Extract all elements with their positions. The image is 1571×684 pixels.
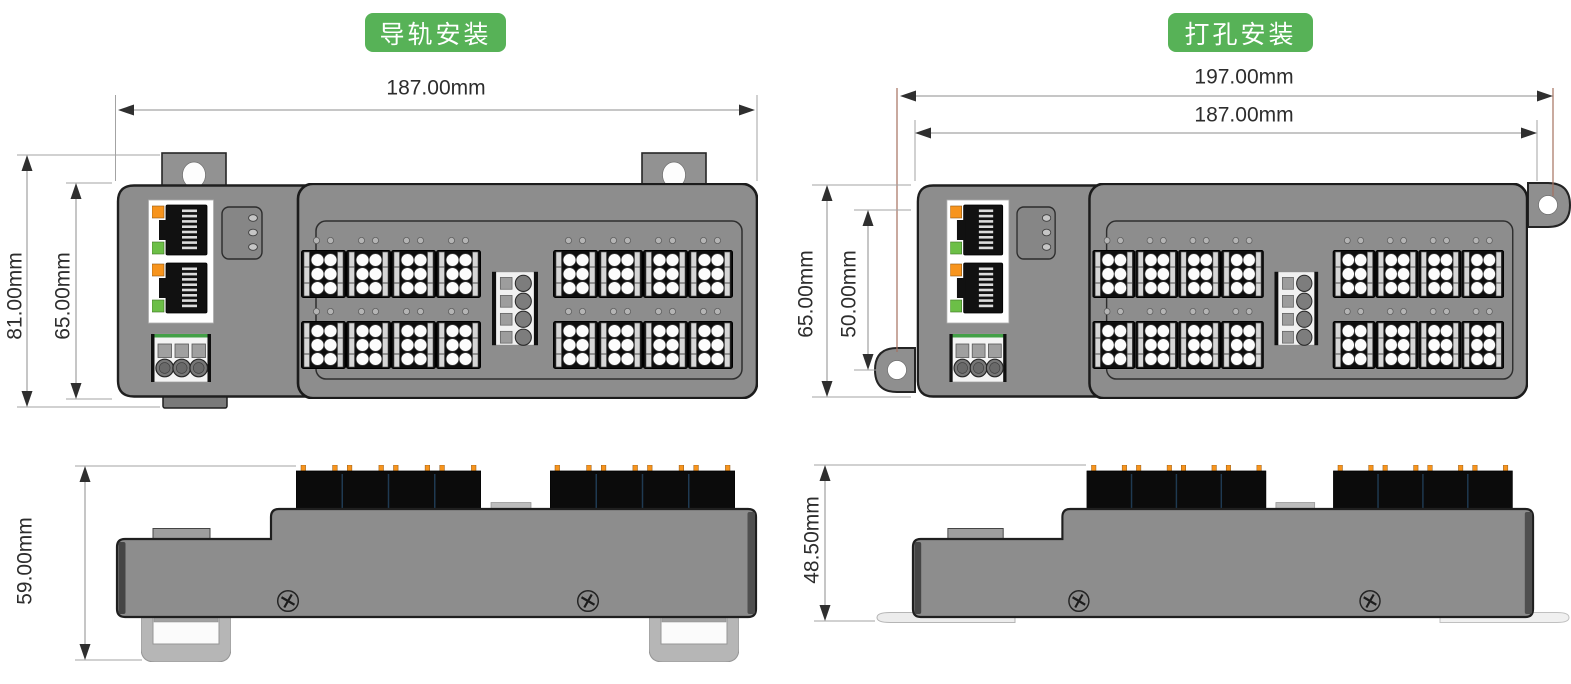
screw-front-view [875,183,1570,398]
dimension-diagram-page: 导轨安装 打孔安装 [0,0,1571,684]
screw-bottom-view [877,465,1569,623]
device-drawing: 187.00mm 81.00mm 65.00mm [0,0,1571,684]
dimension-label: 50.00mm [838,250,861,338]
device-front-body [118,184,757,398]
rail-mount-assembly: 187.00mm 81.00mm 65.00mm [4,77,758,663]
mount-hole-top-right [1539,196,1558,215]
dimension-height-65: 65.00mm [52,183,113,399]
dimension-label: 81.00mm [4,252,27,340]
dimension-label: 65.00mm [795,250,818,338]
dimension-label: 187.00mm [1194,104,1293,127]
dimension-label: 187.00mm [386,77,485,100]
dimension-label: 65.00mm [52,252,75,340]
rail-front-view [118,153,757,408]
dimension-label: 197.00mm [1194,66,1293,89]
device-bottom-body [117,465,756,617]
dimension-label: 48.50mm [801,496,824,584]
device-front-body [918,184,1527,398]
dimension-label: 59.00mm [14,517,37,605]
device-bottom-body [913,465,1533,617]
screw-mount-assembly: 197.00mm 187.00mm 65.00mm [795,66,1571,623]
mount-hole-bottom-left [888,361,907,380]
rail-bottom-view [117,465,756,662]
dimension-hole-spacing-50: 50.00mm [838,210,912,370]
dimension-width-187b: 187.00mm [915,104,1537,182]
